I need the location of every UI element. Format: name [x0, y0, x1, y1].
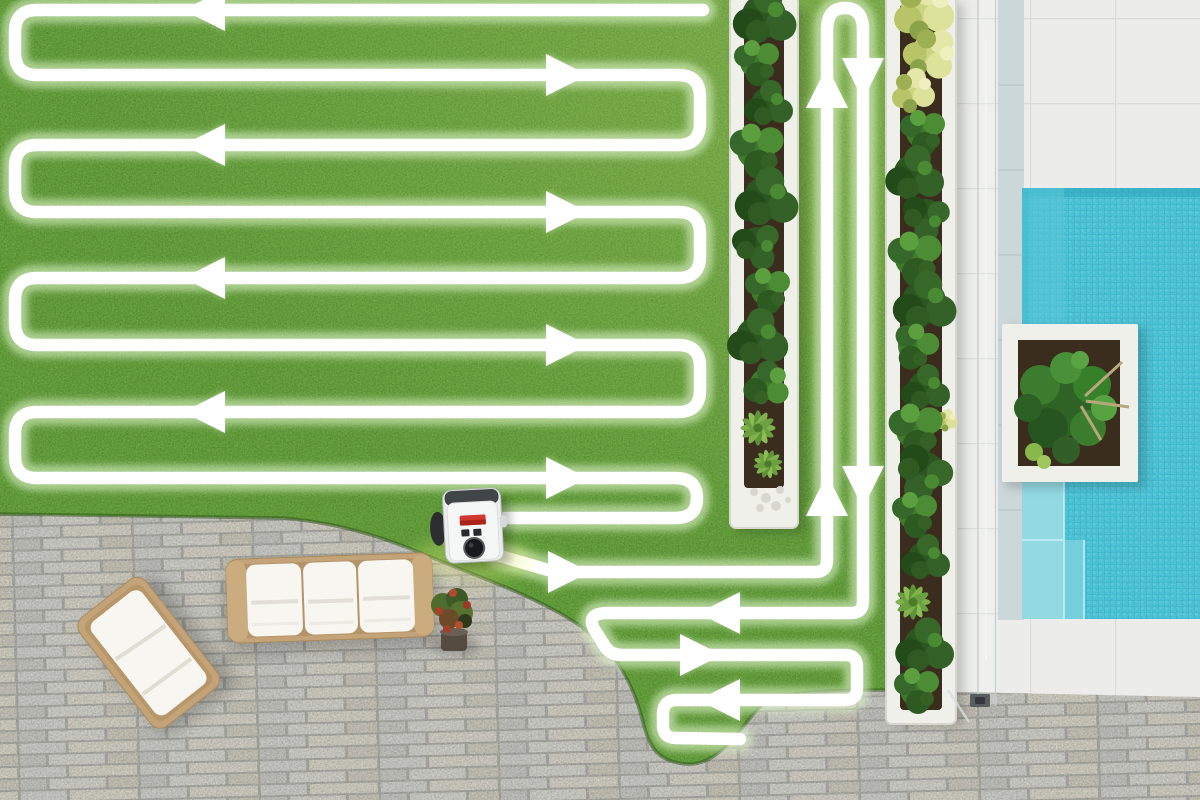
glass-fitting-detail: [975, 697, 985, 704]
bed-left: [725, 0, 806, 534]
sofa-cushions: [246, 559, 415, 637]
bed-right: [884, 0, 967, 726]
scene-svg: Aerial view of a robotic lawn mower's se…: [0, 0, 1200, 800]
sofa-arm-right: [412, 554, 435, 635]
sofa-arm-left: [226, 561, 249, 642]
outdoor-sofa: [224, 552, 439, 653]
station-button-right: [473, 529, 481, 536]
station-side-tab: [500, 515, 508, 527]
aerial-garden-photo: Aerial view of a robotic lawn mower's se…: [0, 0, 1200, 800]
pool-step-1: [1022, 470, 1064, 619]
pool-step-2: [1064, 540, 1084, 619]
pool-coping: [998, 0, 1024, 620]
planter: [1002, 324, 1146, 488]
station-button-left: [461, 529, 469, 536]
